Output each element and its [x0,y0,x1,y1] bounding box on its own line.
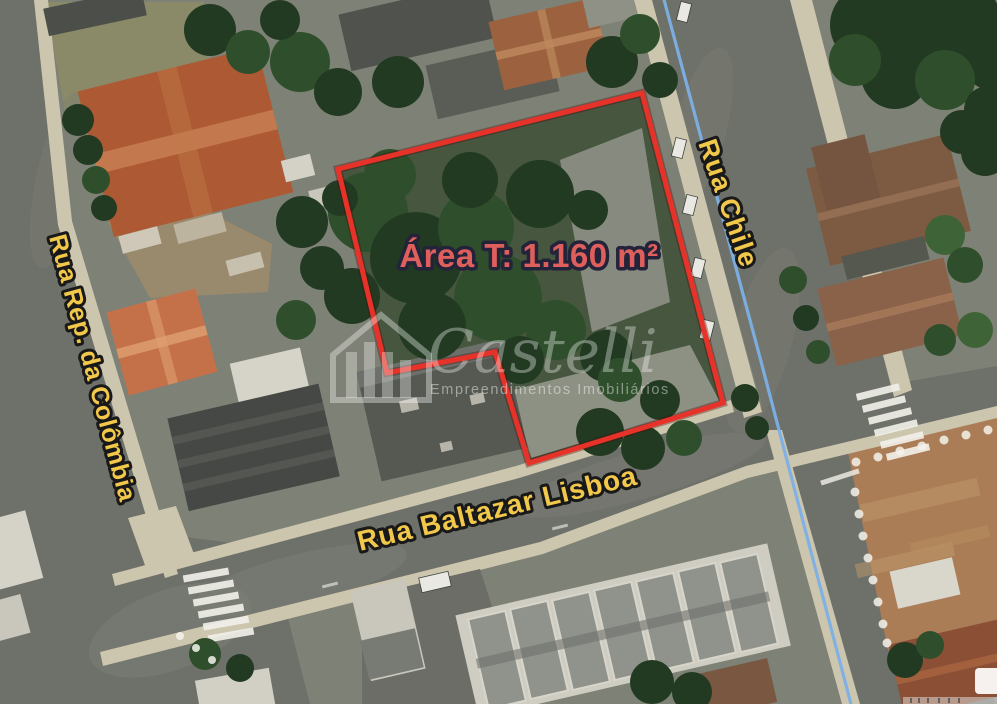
satellite-image: Castelli Empreendimentos Imobiliários Ár… [0,0,997,704]
lot-area-label: Área T: 1.160 m² [399,237,658,274]
watermark-tagline: Empreendimentos Imobiliários [430,382,670,398]
satellite-map-view: Castelli Empreendimentos Imobiliários Ár… [0,0,997,704]
watermark-brand: Castelli [428,317,658,387]
